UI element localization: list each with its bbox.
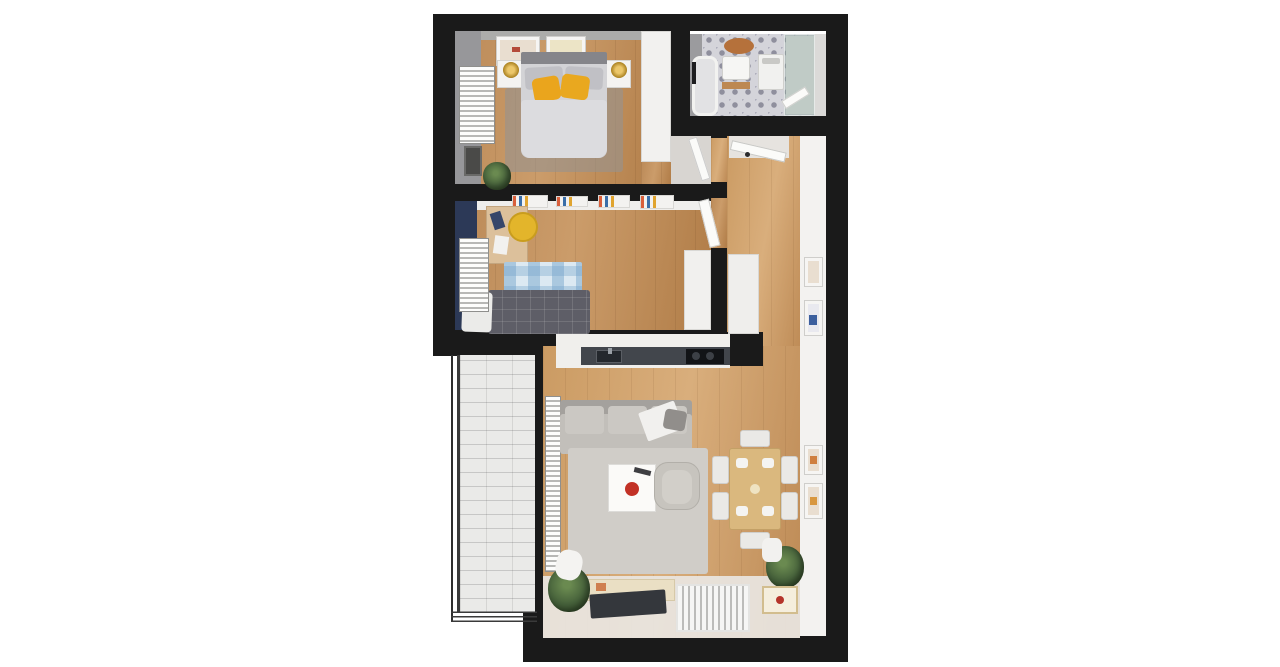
dining-chair-top (740, 430, 770, 447)
coffee-table-bowl (625, 482, 639, 496)
place-setting-2 (762, 458, 774, 468)
kids-shelf-3 (598, 195, 630, 208)
place-setting-4 (762, 506, 774, 516)
wall-living-bottom (523, 636, 848, 662)
bathroom-mirror (724, 38, 754, 54)
opening-bedroom (711, 138, 727, 182)
balcony-rail-outer (451, 355, 453, 622)
hall-cabinet (728, 254, 759, 334)
armchair-seat (662, 470, 692, 504)
place-setting-3 (736, 506, 748, 516)
kids-wardrobe (684, 250, 711, 330)
kitchen-faucet (608, 348, 612, 354)
wall-top (433, 14, 848, 31)
bathtub-fixtures (692, 62, 696, 84)
kids-shelf-2 (556, 196, 588, 207)
pot-right (762, 538, 782, 562)
bedroom-wardrobe (641, 31, 671, 162)
cooktop-burner-2 (706, 352, 714, 360)
kids-shelf-4 (640, 195, 674, 209)
bedroom-wall-frame (464, 146, 482, 176)
wall-bed-bath (670, 14, 690, 130)
sofa-pillow (662, 408, 687, 432)
lamp-left (503, 62, 519, 78)
kids-daybed (488, 290, 590, 334)
floor-plan (0, 0, 1280, 667)
kids-window-blinds (459, 238, 489, 312)
living-window-blinds (545, 396, 561, 572)
lamp-right (611, 62, 627, 78)
sofa-cushion-1 (565, 406, 604, 434)
dining-centerpiece (750, 484, 760, 494)
desk-paper (493, 235, 509, 255)
bedroom-floor-patch (641, 162, 671, 184)
bed-pillow-yellow-right (559, 73, 590, 101)
dining-chair-right-2 (781, 492, 798, 520)
balcony-floor (457, 355, 535, 613)
bedroom-window-blinds (459, 66, 495, 144)
wall-bath-bottom (670, 116, 848, 136)
living-frame-1-art (810, 456, 817, 464)
bed-pillow-yellow-left (531, 75, 562, 103)
tv-stand-deco (596, 583, 606, 591)
bedroom-plant (483, 162, 511, 190)
sink-vanity (722, 82, 750, 89)
hall-frame-1 (805, 258, 822, 286)
floor-mat-art (776, 596, 784, 604)
washer-door (762, 58, 780, 64)
dining-chair-left-2 (712, 492, 729, 520)
hall-frame-2-art (809, 315, 817, 325)
kids-chair (508, 212, 538, 242)
right-wall-face (800, 136, 826, 636)
balcony-rail-bottom (451, 611, 537, 622)
bathroom-wall-face-right (815, 34, 826, 116)
picture-frame-a-art (512, 47, 520, 52)
place-setting-1 (736, 458, 748, 468)
dining-chair-left-1 (712, 456, 729, 484)
wall-right (826, 14, 848, 662)
radiator (676, 584, 750, 632)
dining-chair-right-1 (781, 456, 798, 484)
living-frame-2-art (810, 497, 817, 505)
entry-door-handle (745, 152, 750, 157)
cooktop-burner-1 (692, 352, 700, 360)
bathroom-sink (722, 56, 750, 80)
bed-duvet (521, 100, 607, 158)
